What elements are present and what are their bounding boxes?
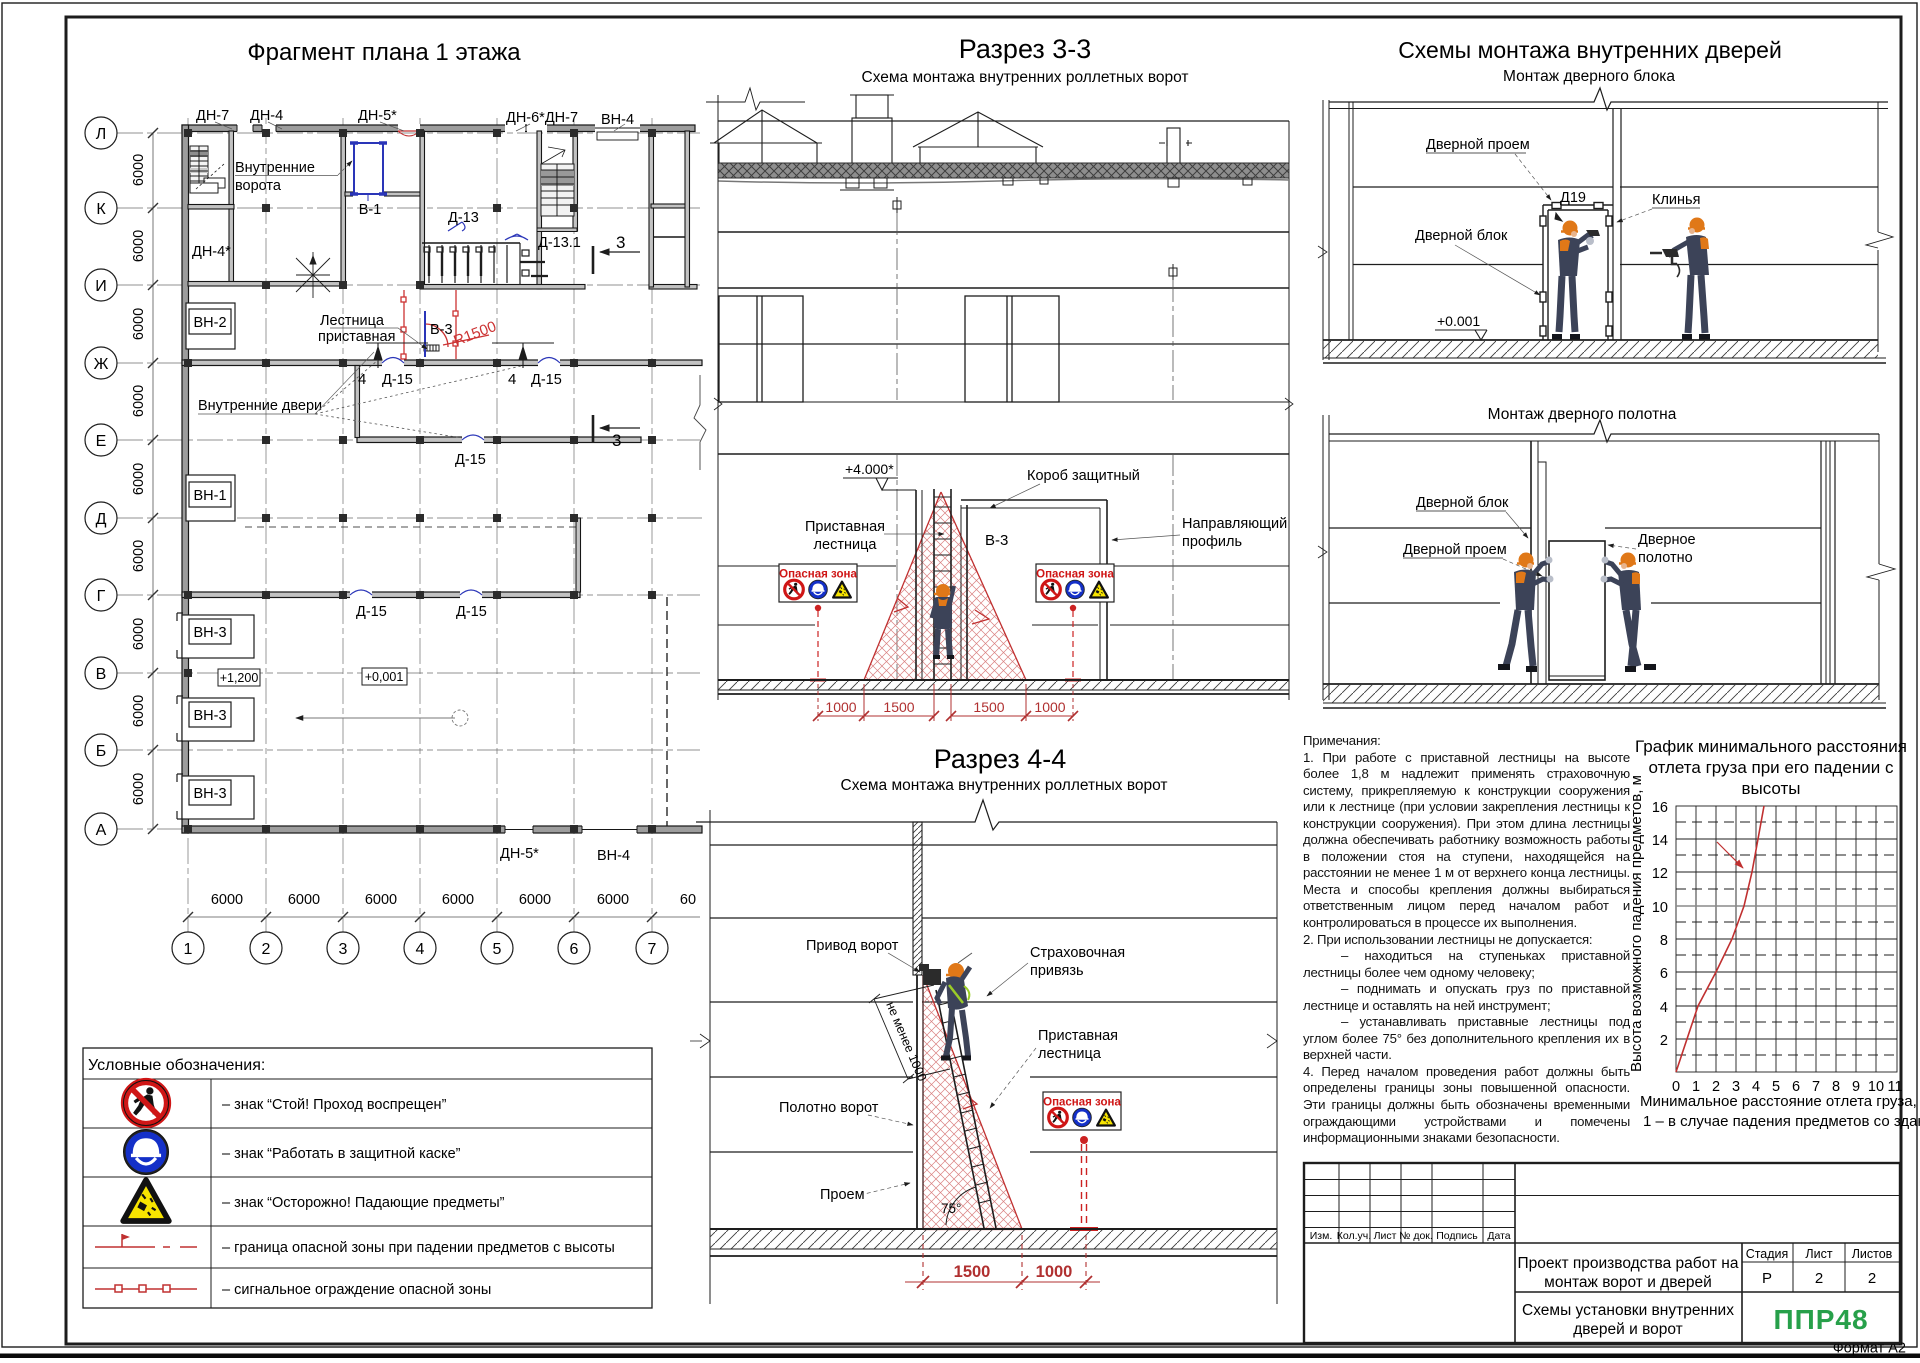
- svg-text:16: 16: [1652, 800, 1668, 816]
- svg-text:№ док.: № док.: [1399, 1230, 1433, 1242]
- svg-text:Проект производства работ на: Проект производства работ на: [1518, 1255, 1739, 1272]
- svg-text:10: 10: [1652, 900, 1668, 916]
- svg-text:Дата: Дата: [1487, 1230, 1510, 1242]
- svg-text:Полотно ворот: Полотно ворот: [779, 1100, 879, 1116]
- svg-text:6000: 6000: [131, 618, 147, 650]
- svg-text:Д-15: Д-15: [531, 372, 562, 388]
- svg-text:Дверное: Дверное: [1638, 532, 1696, 548]
- svg-text:1500: 1500: [954, 1263, 991, 1281]
- svg-text:монтаж ворот и дверей: монтаж ворот и дверей: [1544, 1274, 1712, 1291]
- svg-text:Д-13.1: Д-13.1: [538, 235, 581, 251]
- svg-text:6000: 6000: [288, 892, 320, 908]
- svg-text:Разрез 4-4: Разрез 4-4: [934, 744, 1067, 774]
- svg-text:4: 4: [508, 371, 516, 388]
- svg-text:А: А: [96, 822, 107, 839]
- svg-text:ДН-5*: ДН-5*: [500, 846, 539, 862]
- svg-text:6000: 6000: [365, 892, 397, 908]
- svg-text:ВН-3: ВН-3: [193, 625, 226, 641]
- svg-text:ППР48: ППР48: [1773, 1304, 1868, 1335]
- svg-text:ВН-4: ВН-4: [601, 112, 634, 128]
- svg-text:Д19: Д19: [1560, 190, 1586, 206]
- svg-text:высоты: высоты: [1741, 779, 1800, 798]
- svg-text:6000: 6000: [131, 230, 147, 262]
- svg-text:6000: 6000: [131, 695, 147, 727]
- svg-text:3: 3: [612, 431, 621, 450]
- svg-text:ДН-7: ДН-7: [196, 108, 229, 124]
- svg-text:Монтаж дверного блока: Монтаж дверного блока: [1503, 68, 1675, 85]
- svg-text:8: 8: [1660, 933, 1668, 949]
- svg-text:6: 6: [570, 941, 579, 958]
- svg-text:2: 2: [1660, 1033, 1668, 1049]
- svg-text:Л: Л: [96, 126, 107, 143]
- svg-text:Кол.уч.: Кол.уч.: [1337, 1230, 1371, 1242]
- svg-text:Подпись: Подпись: [1436, 1230, 1478, 1242]
- svg-text:ДН-6*ДН-7: ДН-6*ДН-7: [506, 110, 578, 126]
- svg-text:отлета груза при его падении с: отлета груза при его падении с: [1649, 758, 1894, 777]
- svg-text:ВН-1: ВН-1: [193, 488, 226, 504]
- svg-text:Дверной блок: Дверной блок: [1416, 495, 1509, 511]
- svg-text:1500: 1500: [883, 699, 914, 715]
- svg-text:Условные обозначения:: Условные обозначения:: [88, 1057, 265, 1074]
- svg-text:Высота возможного падения пред: Высота возможного падения предметов, м: [1628, 775, 1645, 1072]
- svg-text:Д-15: Д-15: [356, 604, 387, 620]
- svg-text:6000: 6000: [131, 308, 147, 340]
- svg-text:4: 4: [1660, 1000, 1668, 1016]
- svg-text:Дверной проем: Дверной проем: [1403, 542, 1507, 558]
- svg-text:1000: 1000: [1036, 1263, 1073, 1281]
- svg-text:В: В: [96, 666, 107, 683]
- svg-text:ДН-4: ДН-4: [250, 108, 283, 124]
- svg-text:Внутренние двери: Внутренние двери: [198, 398, 322, 414]
- svg-text:2: 2: [1868, 1270, 1876, 1287]
- svg-text:+0.001: +0.001: [1437, 313, 1480, 329]
- svg-text:Д-13: Д-13: [448, 210, 479, 226]
- svg-text:6000: 6000: [442, 892, 474, 908]
- svg-text:3: 3: [339, 941, 348, 958]
- svg-text:– сигнальное ограждение опасно: – сигнальное ограждение опасной зоны: [222, 1282, 491, 1298]
- svg-text:5: 5: [493, 941, 502, 958]
- svg-text:6000: 6000: [131, 463, 147, 495]
- svg-text:Е: Е: [96, 433, 107, 450]
- svg-text:ДН-5*: ДН-5*: [358, 108, 397, 124]
- svg-text:График минимального расстояния: График минимального расстояния: [1635, 737, 1907, 756]
- svg-text:1000: 1000: [825, 699, 856, 715]
- svg-text:Дверной проем: Дверной проем: [1426, 137, 1530, 153]
- svg-text:ворота: ворота: [235, 178, 282, 194]
- svg-text:2: 2: [262, 941, 271, 958]
- svg-text:4: 4: [416, 941, 425, 958]
- svg-text:2: 2: [1815, 1270, 1823, 1287]
- svg-text:Фрагмент плана 1 этажа: Фрагмент плана 1 этажа: [247, 39, 521, 66]
- svg-text:Лестница: Лестница: [320, 313, 385, 329]
- svg-text:6000: 6000: [131, 540, 147, 572]
- svg-text:Минимальное расстояние отлета: Минимальное расстояние отлета груза, м: [1640, 1093, 1920, 1110]
- svg-text:1000: 1000: [1034, 699, 1065, 715]
- svg-text:Страховочная: Страховочная: [1030, 945, 1125, 961]
- svg-text:Привод ворот: Привод ворот: [806, 938, 899, 954]
- svg-text:Ж: Ж: [94, 356, 109, 373]
- svg-text:привязь: привязь: [1030, 963, 1084, 979]
- svg-text:Дверной блок: Дверной блок: [1415, 228, 1508, 244]
- svg-text:12: 12: [1652, 866, 1668, 882]
- svg-text:Схемы установки внутренних: Схемы установки внутренних: [1522, 1302, 1734, 1319]
- svg-text:ДН-4*: ДН-4*: [192, 244, 231, 260]
- svg-text:Р: Р: [1762, 1270, 1772, 1287]
- svg-text:1500: 1500: [973, 699, 1004, 715]
- svg-text:1 – в случае падения предметов: 1 – в случае падения предметов со здания: [1643, 1113, 1920, 1130]
- svg-text:Внутренние: Внутренние: [235, 160, 315, 176]
- svg-text:ВН-3: ВН-3: [193, 786, 226, 802]
- svg-text:14: 14: [1652, 833, 1668, 849]
- svg-text:В-3: В-3: [985, 532, 1008, 549]
- svg-text:3: 3: [616, 233, 625, 252]
- svg-text:Схема монтажа внутренних ролле: Схема монтажа внутренних роллетных ворот: [841, 777, 1168, 794]
- svg-text:Разрез 3-3: Разрез 3-3: [959, 34, 1092, 64]
- svg-text:– граница опасной зоны при пад: – граница опасной зоны при падении предм…: [222, 1240, 615, 1256]
- svg-text:6000: 6000: [211, 892, 243, 908]
- svg-text:6000: 6000: [131, 154, 147, 186]
- svg-text:Лист: Лист: [1374, 1230, 1397, 1242]
- svg-text:ВН-2: ВН-2: [193, 315, 226, 331]
- svg-text:полотно: полотно: [1638, 550, 1693, 566]
- svg-text:ВН-4: ВН-4: [597, 848, 630, 864]
- svg-text:+1,200: +1,200: [220, 671, 259, 685]
- svg-text:Листов: Листов: [1852, 1247, 1893, 1261]
- svg-text:лестница: лестница: [814, 537, 878, 553]
- svg-text:Д-15: Д-15: [382, 372, 413, 388]
- svg-text:Лист: Лист: [1805, 1247, 1832, 1261]
- svg-text:лестница: лестница: [1038, 1046, 1102, 1062]
- svg-text:Короб защитный: Короб защитный: [1027, 468, 1140, 484]
- svg-text:6000: 6000: [519, 892, 551, 908]
- svg-text:1: 1: [184, 941, 193, 958]
- svg-text:К: К: [96, 201, 106, 218]
- svg-text:Клинья: Клинья: [1652, 192, 1700, 208]
- svg-text:60: 60: [680, 892, 696, 908]
- svg-text:– знак “Стой! Проход воспрещен: – знак “Стой! Проход воспрещен”: [222, 1097, 447, 1113]
- svg-text:В-3: В-3: [430, 322, 453, 338]
- svg-text:ВН-3: ВН-3: [193, 708, 226, 724]
- svg-text:Приставная: Приставная: [1038, 1028, 1118, 1044]
- svg-text:6: 6: [1660, 966, 1668, 982]
- svg-text:– знак “Работать в защитной ка: – знак “Работать в защитной каске”: [222, 1146, 461, 1162]
- svg-text:Проем: Проем: [820, 1187, 865, 1203]
- svg-text:Д-15: Д-15: [455, 452, 486, 468]
- svg-text:Приставная: Приставная: [805, 519, 885, 535]
- svg-text:Направляющий: Направляющий: [1182, 516, 1287, 532]
- svg-text:Д: Д: [96, 511, 107, 528]
- svg-text:И: И: [95, 278, 107, 295]
- svg-text:6000: 6000: [131, 385, 147, 417]
- svg-text:Монтаж дверного полотна: Монтаж дверного полотна: [1488, 406, 1677, 423]
- svg-text:Д-15: Д-15: [456, 604, 487, 620]
- svg-text:Стадия: Стадия: [1746, 1247, 1789, 1261]
- svg-text:+0,001: +0,001: [365, 670, 404, 684]
- svg-text:дверей и ворот: дверей и ворот: [1573, 1321, 1683, 1338]
- svg-text:– знак “Осторожно! Падающие пр: – знак “Осторожно! Падающие предметы”: [222, 1195, 505, 1211]
- svg-text:+4.000*: +4.000*: [845, 461, 894, 477]
- svg-text:Изм.: Изм.: [1310, 1230, 1333, 1242]
- svg-text:75°: 75°: [941, 1201, 961, 1216]
- svg-text:Схема монтажа внутренних ролле: Схема монтажа внутренних роллетных ворот: [862, 69, 1189, 86]
- svg-text:Б: Б: [96, 743, 107, 760]
- svg-text:Схемы монтажа внутренних двере: Схемы монтажа внутренних дверей: [1398, 37, 1782, 63]
- svg-text:В-1: В-1: [359, 202, 382, 218]
- svg-text:6000: 6000: [131, 773, 147, 805]
- svg-text:6000: 6000: [597, 892, 629, 908]
- svg-text:профиль: профиль: [1182, 534, 1242, 550]
- svg-text:7: 7: [648, 941, 657, 958]
- svg-text:Г: Г: [97, 588, 106, 605]
- svg-text:приставная: приставная: [318, 329, 395, 345]
